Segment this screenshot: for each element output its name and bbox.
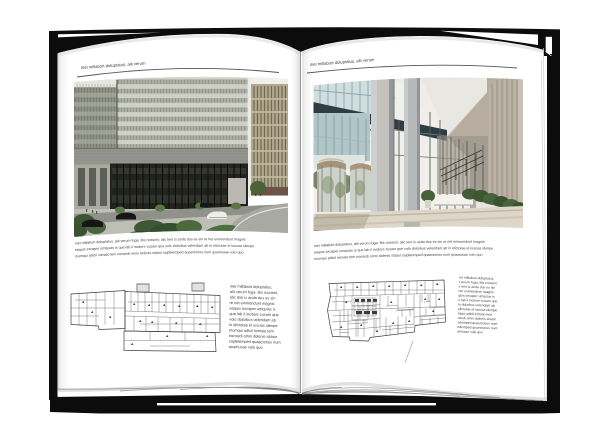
svg-text:quamusae volo quo: quamusae volo quo [229, 344, 263, 350]
